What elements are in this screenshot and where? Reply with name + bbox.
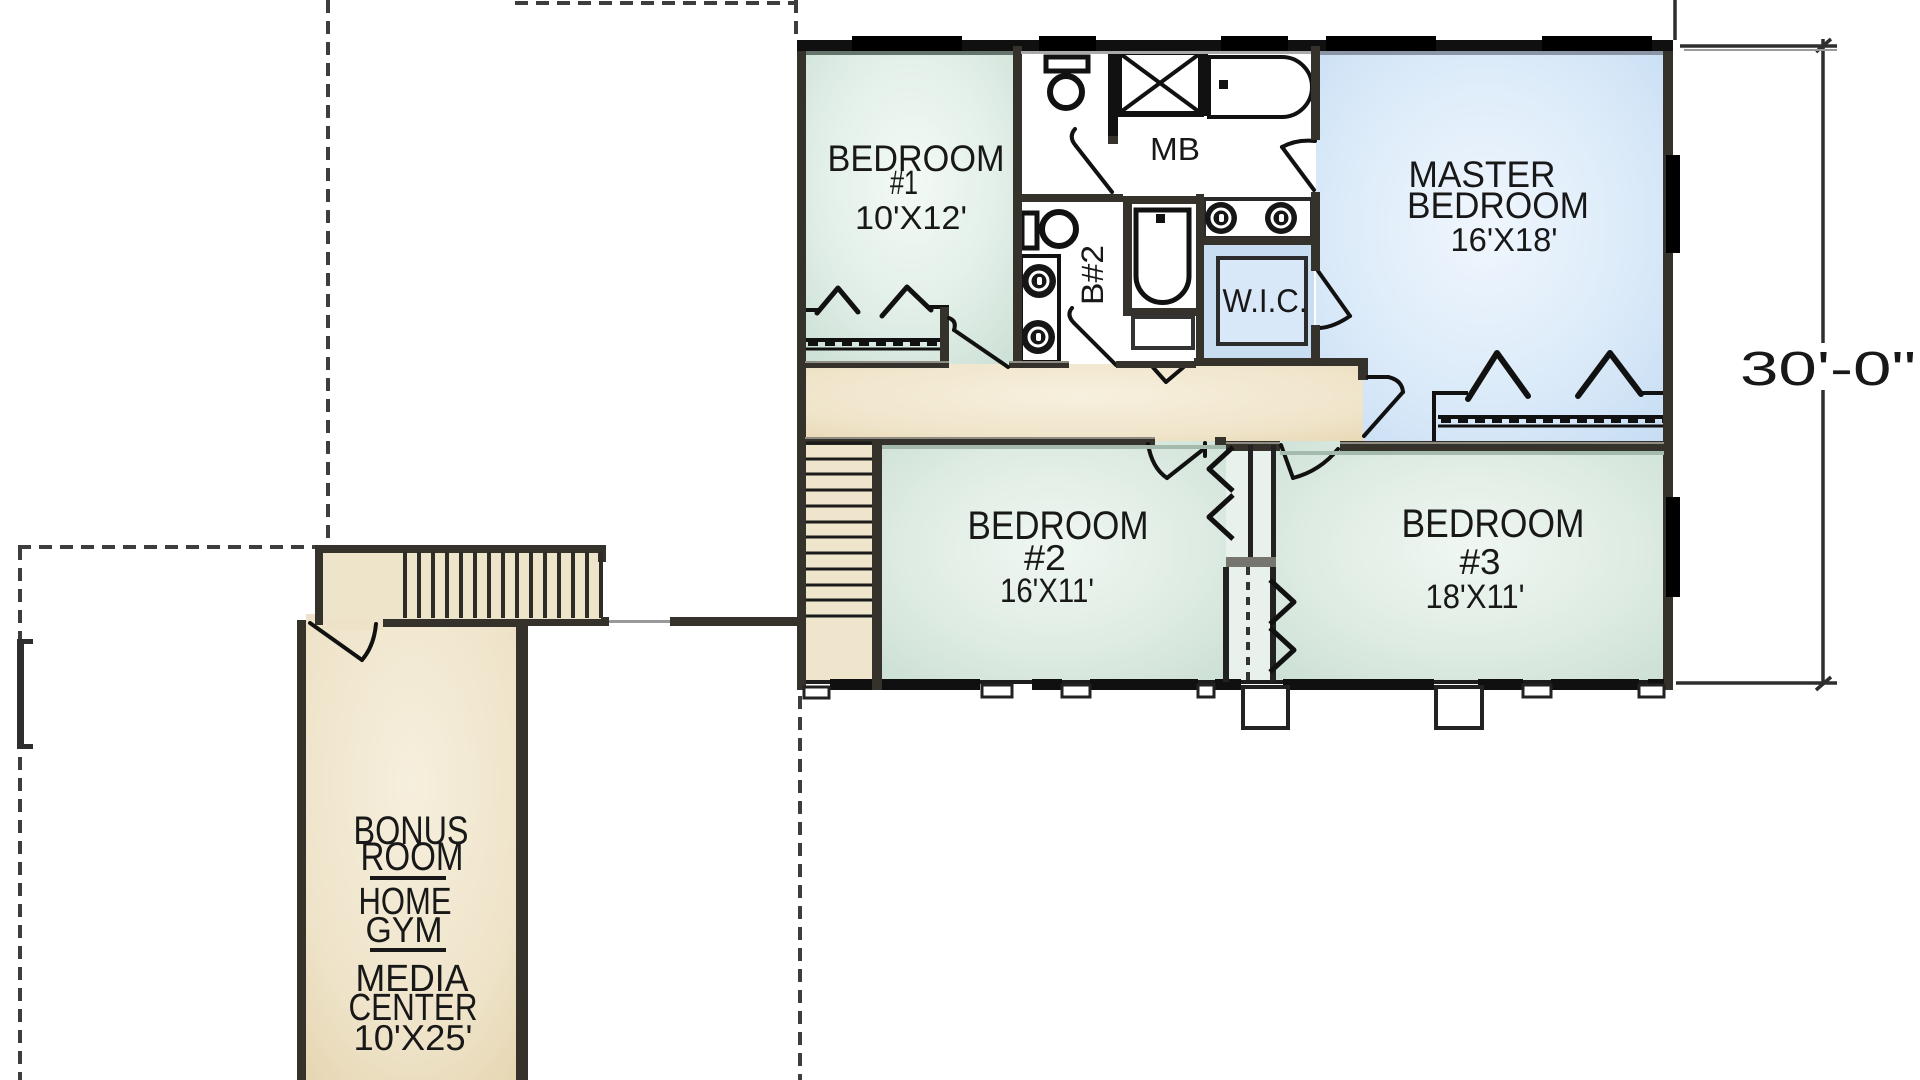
svg-text:#3: #3 bbox=[1460, 541, 1501, 582]
svg-text:16'X18': 16'X18' bbox=[1451, 221, 1558, 258]
svg-text:ROOM: ROOM bbox=[361, 835, 464, 879]
svg-text:W.I.C.: W.I.C. bbox=[1223, 282, 1308, 319]
svg-text:16'X11': 16'X11' bbox=[1000, 572, 1094, 610]
svg-text:#1: #1 bbox=[890, 164, 918, 202]
svg-text:10'X12': 10'X12' bbox=[855, 199, 967, 236]
svg-text:10'X25': 10'X25' bbox=[354, 1017, 473, 1058]
svg-text:MB: MB bbox=[1150, 131, 1200, 167]
svg-text:18'X11': 18'X11' bbox=[1426, 578, 1525, 616]
svg-text:B#2: B#2 bbox=[1075, 245, 1110, 305]
svg-text:BEDROOM: BEDROOM bbox=[1402, 502, 1585, 546]
svg-text:BEDROOM: BEDROOM bbox=[1407, 185, 1589, 226]
svg-text:30'-0": 30'-0" bbox=[1740, 343, 1916, 396]
svg-text:GYM: GYM bbox=[366, 909, 443, 950]
